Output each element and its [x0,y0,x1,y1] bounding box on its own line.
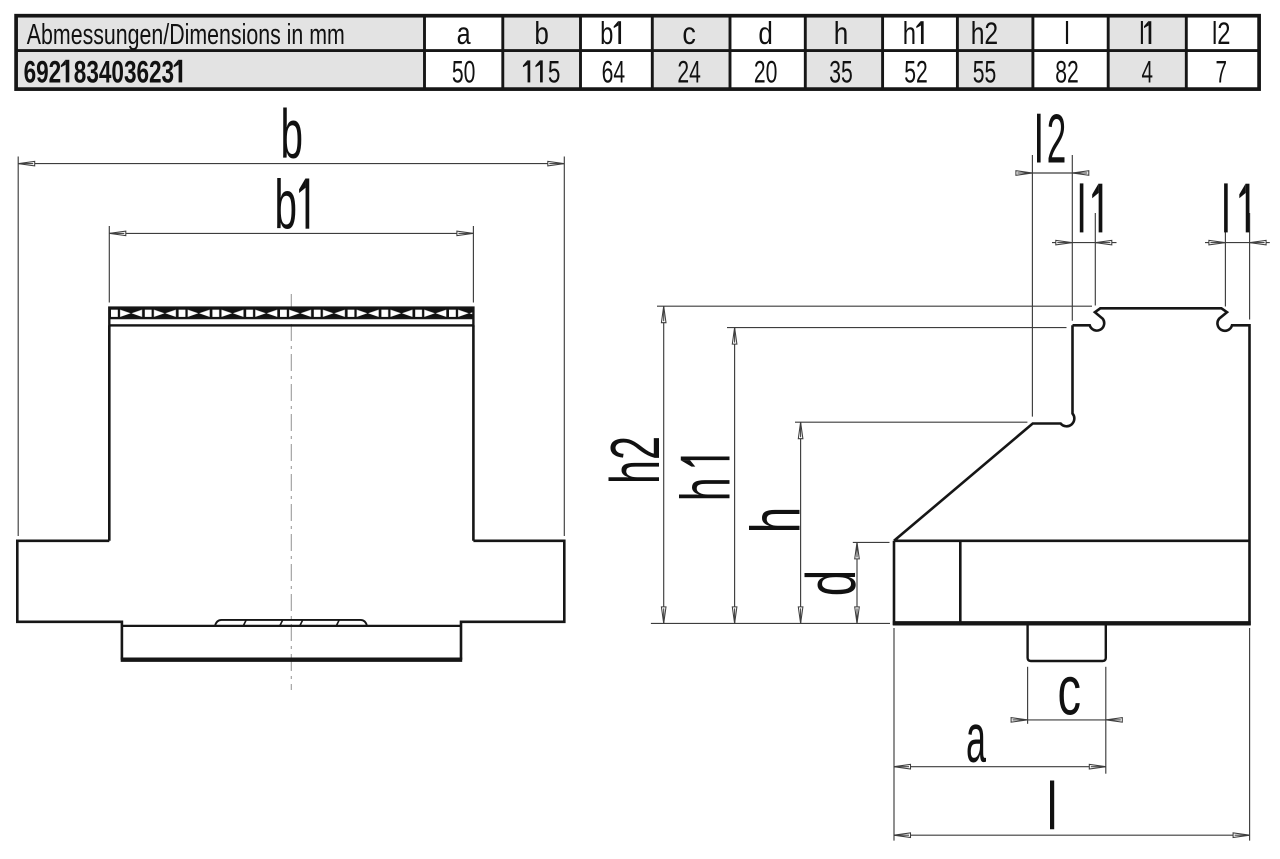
svg-text:50: 50 [452,53,476,89]
svg-text:64: 64 [602,53,626,89]
svg-text:h: h [903,15,916,51]
svg-text:l: l [1139,15,1144,51]
svg-text:l2: l2 [1212,15,1231,51]
svg-text:2: 2 [1047,100,1067,178]
svg-text:24: 24 [677,53,701,89]
svg-text:20: 20 [754,53,778,89]
svg-text:52: 52 [904,53,928,89]
svg-text:h2: h2 [596,436,674,484]
svg-text:Abmessungen/Dimensions in mm: Abmessungen/Dimensions in mm [27,19,345,51]
svg-text:b: b [534,15,549,51]
svg-text:c: c [682,15,696,51]
svg-text:55: 55 [973,53,997,89]
svg-text:h: h [736,507,814,534]
svg-text:82: 82 [1055,53,1079,89]
svg-text:5: 5 [548,53,561,89]
svg-text:h: h [667,477,745,501]
svg-text:b: b [600,15,613,51]
svg-text:35: 35 [829,53,853,89]
svg-text:692: 692 [24,53,62,89]
svg-text:a: a [966,699,986,777]
svg-text:h2: h2 [971,15,999,51]
svg-text:d: d [792,570,870,597]
svg-text:c: c [1058,652,1082,730]
svg-text:83403623: 83403623 [74,53,174,89]
svg-text:b: b [281,95,304,173]
svg-text:d: d [758,15,773,51]
svg-text:l: l [1064,15,1070,51]
svg-text:7: 7 [1216,53,1228,89]
svg-text:h: h [834,15,849,51]
svg-text:b: b [275,166,298,244]
svg-text:a: a [457,15,471,51]
svg-text:4: 4 [1142,53,1154,89]
